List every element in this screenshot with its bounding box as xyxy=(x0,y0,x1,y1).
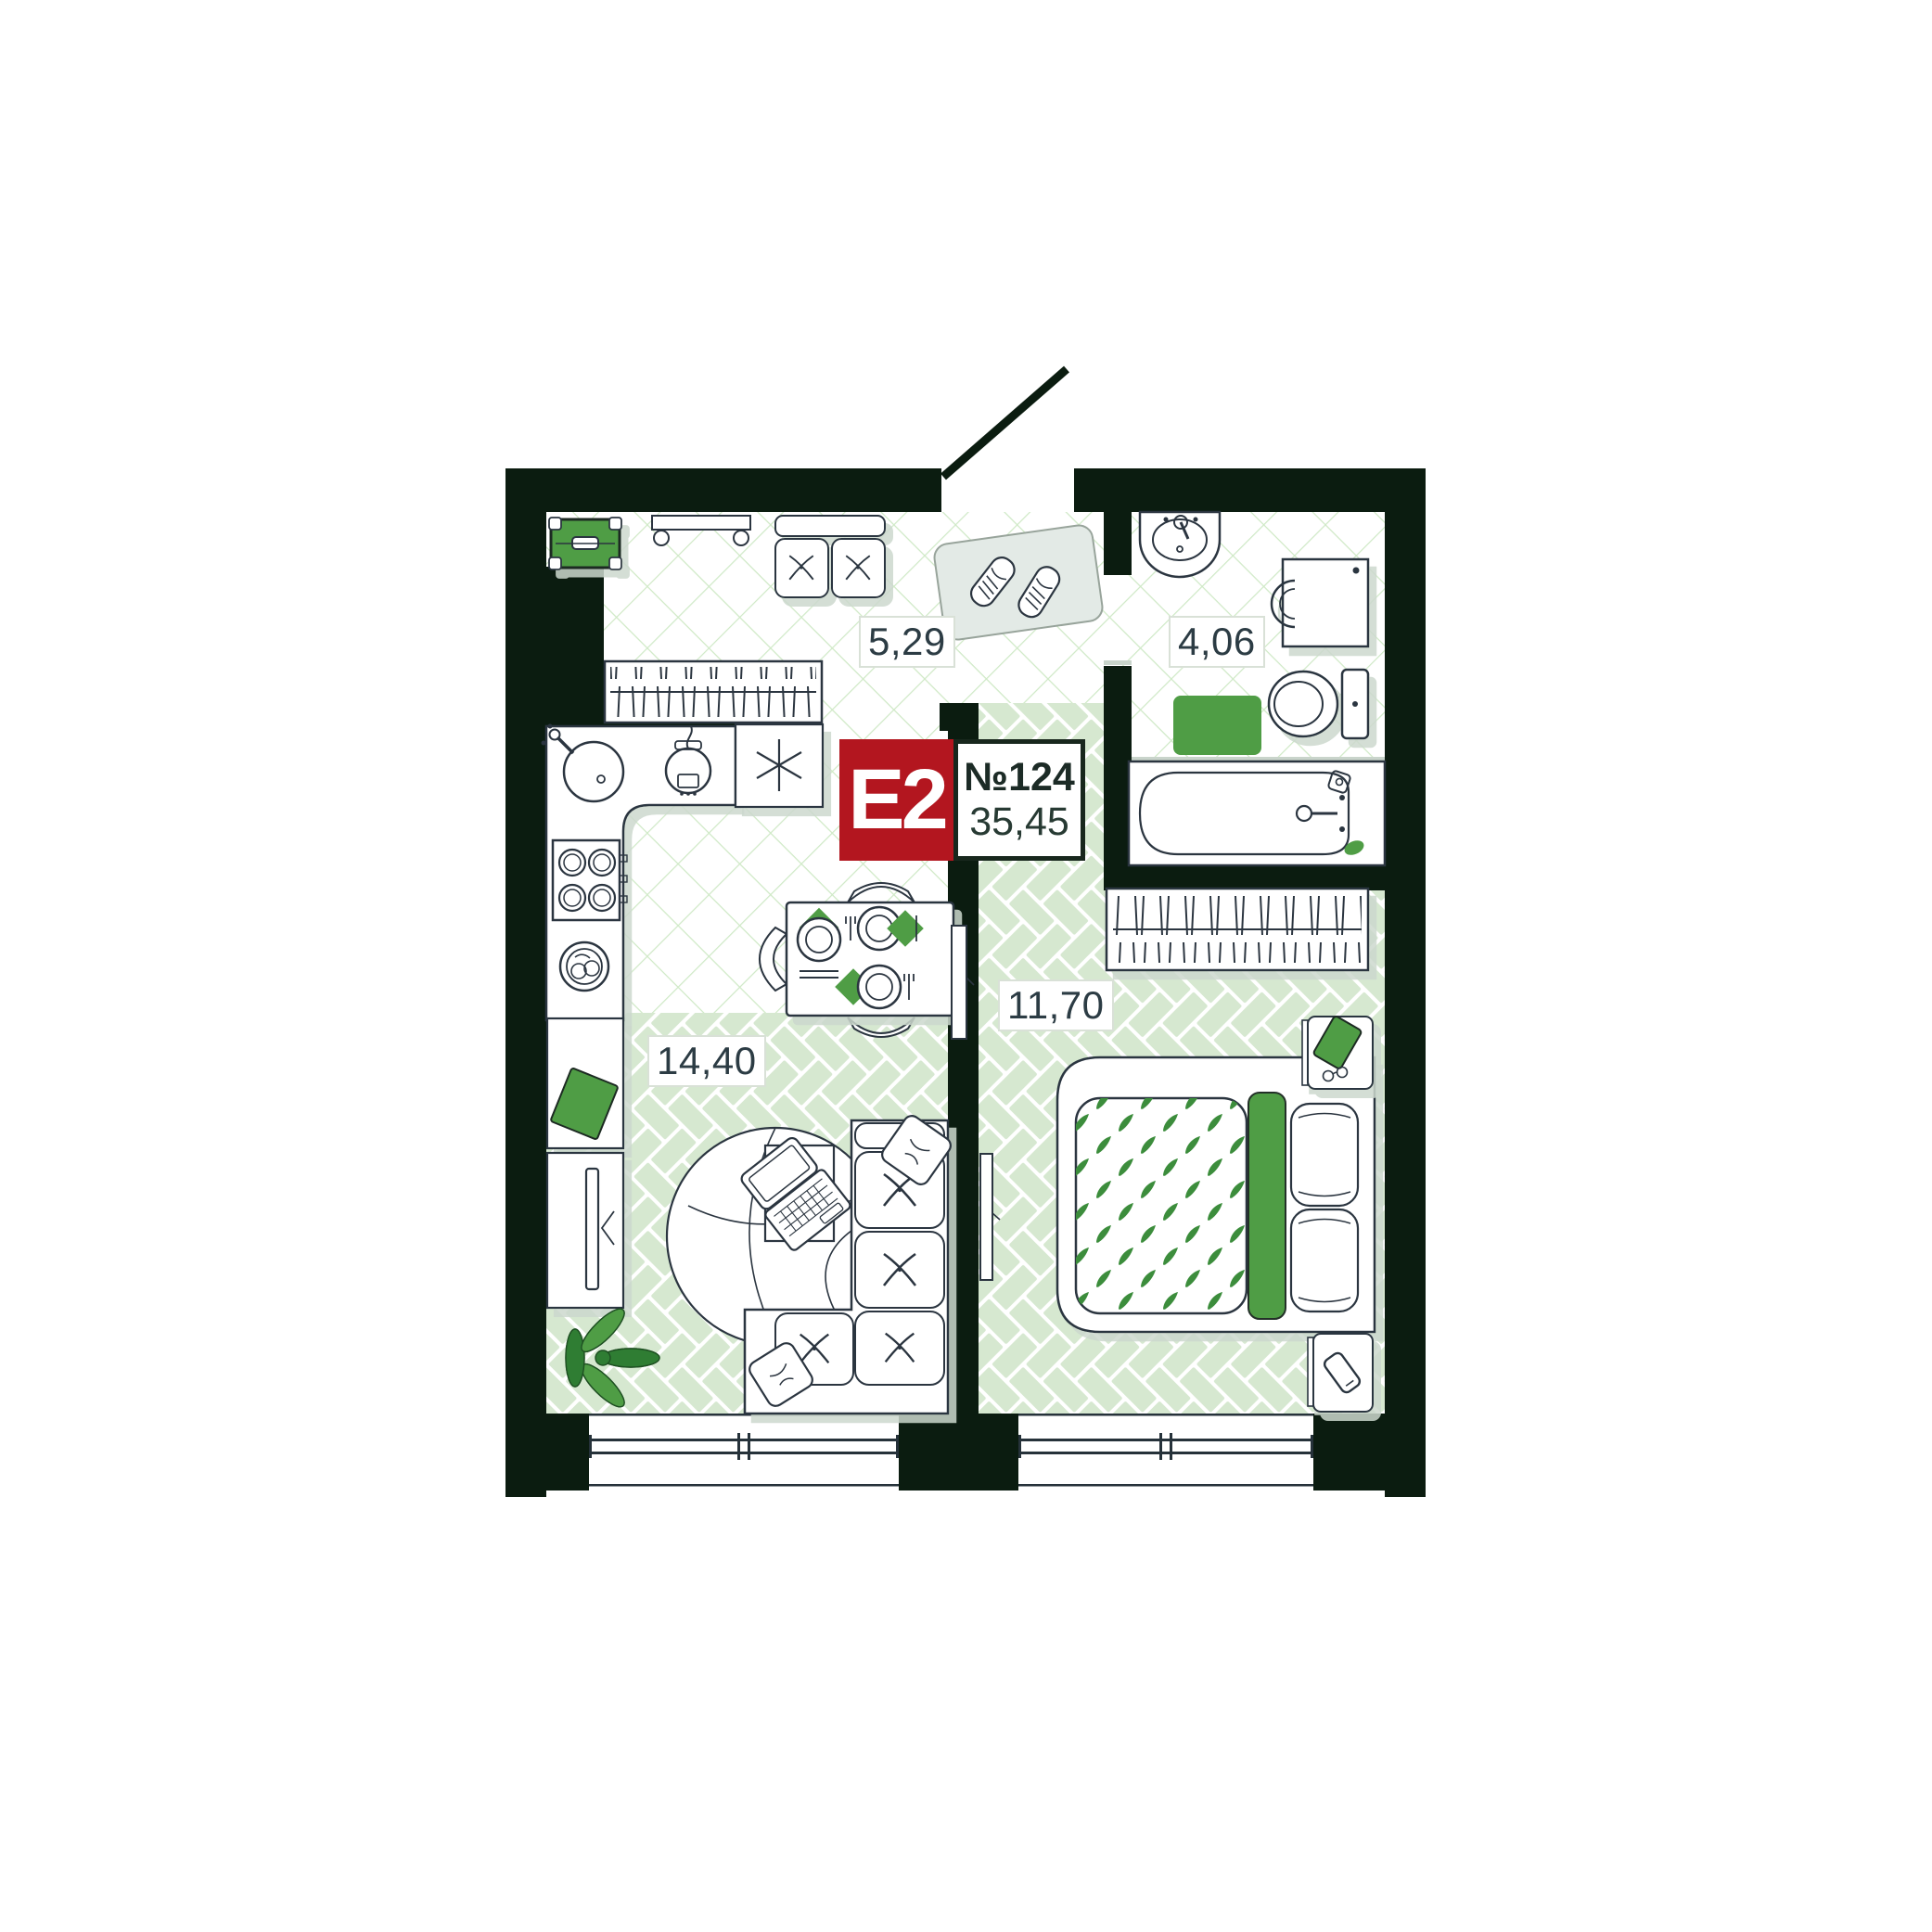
wall-bathroom-upper xyxy=(1104,512,1132,575)
hall-wardrobe xyxy=(605,661,822,723)
floor-plan-graphic xyxy=(0,0,1932,1932)
window-living-room xyxy=(589,1414,899,1488)
unit-badge: E2 №124 35,45 xyxy=(839,739,1085,861)
suitcase xyxy=(549,518,621,569)
unit-number: №124 xyxy=(964,757,1075,799)
bathroom-door-floor xyxy=(1104,572,1132,666)
wall-bottom-pier-middle xyxy=(899,1414,1018,1491)
doormat xyxy=(933,524,1105,642)
area-label-living: 14,40 xyxy=(647,1035,766,1087)
bedroom-wardrobe xyxy=(1107,889,1368,970)
food-plate xyxy=(560,942,608,991)
window-bedroom xyxy=(1018,1414,1313,1488)
nightstand-bottom xyxy=(1308,1334,1373,1412)
nightstand-top xyxy=(1302,1016,1373,1089)
bed-pillow xyxy=(1291,1209,1358,1311)
wall-top-right xyxy=(1074,468,1426,512)
wall-bathroom-lower xyxy=(1104,666,1132,865)
wall-column-hallway xyxy=(505,567,604,726)
wall-right xyxy=(1385,468,1426,1497)
bathroom-threshold xyxy=(1104,660,1132,665)
bath-mat xyxy=(1173,696,1261,755)
floor-plan-canvas: 5,29 4,06 14,40 11,70 E2 №124 35,45 xyxy=(0,0,1932,1932)
unit-total-area: 35,45 xyxy=(969,801,1069,843)
area-label-hallway: 5,29 xyxy=(859,616,955,668)
unit-type-label: E2 xyxy=(839,739,953,861)
wash-basin xyxy=(1140,512,1220,577)
wall-top-left xyxy=(505,468,941,512)
dining-table-set xyxy=(760,883,953,1037)
bed-pillow xyxy=(1291,1104,1358,1206)
headboard xyxy=(1248,1093,1286,1319)
washing-machine xyxy=(1272,559,1368,646)
entrance-door-swing xyxy=(943,369,1067,477)
unit-info-box: №124 35,45 xyxy=(953,739,1085,861)
bathtub xyxy=(1129,761,1385,865)
stove xyxy=(553,840,627,920)
tv xyxy=(586,1169,598,1289)
toilet xyxy=(1269,670,1368,738)
hob-asterisk xyxy=(736,724,823,807)
area-label-bedroom: 11,70 xyxy=(998,979,1114,1031)
wall-bathroom-bedroom xyxy=(1104,865,1385,890)
wall-bottom-pier-left xyxy=(505,1414,589,1491)
tv-stand xyxy=(547,1153,623,1308)
double-bed xyxy=(1057,1057,1375,1332)
wall-bottom-pier-right xyxy=(1313,1414,1426,1491)
dresser xyxy=(547,1018,623,1148)
area-label-bathroom: 4,06 xyxy=(1169,616,1265,668)
